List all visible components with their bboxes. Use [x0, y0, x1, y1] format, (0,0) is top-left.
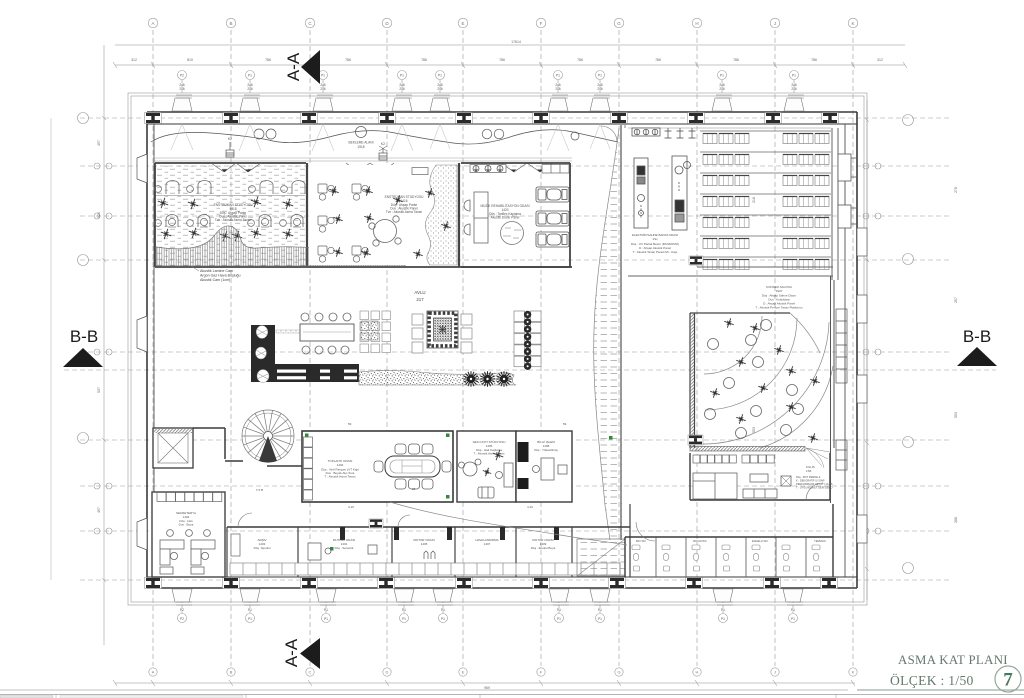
svg-text:P1: P1 — [438, 74, 442, 78]
svg-text:A-A: A-A — [284, 52, 303, 81]
svg-text:P1: P1 — [556, 74, 560, 78]
svg-text:P1: P1 — [324, 617, 328, 621]
svg-text:59: 59 — [348, 422, 352, 426]
svg-text:E: E — [461, 21, 464, 26]
svg-text:312: 312 — [877, 58, 883, 62]
svg-text:BEKLEME ALANI: BEKLEME ALANI — [349, 141, 374, 145]
svg-text:Döş : Epoksi: Döş : Epoksi — [254, 546, 271, 550]
svg-text:29: 29 — [412, 487, 416, 491]
svg-text:H: H — [696, 670, 699, 675]
svg-text:E: E — [462, 670, 465, 675]
svg-text:810: 810 — [187, 58, 193, 62]
svg-text:A-A: A-A — [282, 638, 301, 667]
svg-text:P1: P1 — [791, 617, 795, 621]
svg-text:786: 786 — [265, 58, 271, 62]
svg-text:T : Akustik Asma Tavan: T : Akustik Asma Tavan — [474, 452, 505, 456]
svg-text:786: 786 — [499, 58, 505, 62]
svg-text:P1: P1 — [792, 74, 796, 78]
svg-text:AVLU: AVLU — [414, 290, 425, 295]
svg-text:± 5 B: ± 5 B — [256, 488, 263, 492]
svg-text:786: 786 — [421, 58, 427, 62]
svg-text:A: A — [152, 670, 155, 675]
svg-text:P1: P1 — [402, 617, 406, 621]
svg-text:246: 246 — [179, 87, 185, 91]
svg-text:Döş : Yükseltilmiş: Döş : Yükseltilmiş — [534, 448, 558, 452]
svg-text:246: 246 — [719, 87, 725, 91]
svg-text:H: H — [695, 21, 698, 26]
svg-text:P1: P1 — [557, 617, 561, 621]
svg-text:Tvn : Akustik Asma Tavan: Tvn : Akustik Asma Tavan — [386, 210, 422, 214]
svg-text:288: 288 — [954, 517, 958, 523]
svg-text:BAY WC: BAY WC — [636, 539, 646, 543]
svg-text:P1: P1 — [721, 617, 725, 621]
svg-text:278: 278 — [954, 187, 958, 193]
svg-text:P1: P1 — [324, 608, 328, 612]
svg-text:P1: P1 — [720, 74, 724, 78]
svg-text:BAYAN WC: BAYAN WC — [693, 539, 707, 543]
svg-text:1405: 1405 — [421, 542, 428, 546]
svg-text:P1: P1 — [248, 617, 252, 621]
svg-text:1918: 1918 — [357, 145, 364, 149]
svg-text:17614: 17614 — [511, 40, 521, 44]
svg-text:969: 969 — [484, 686, 490, 690]
svg-text:497: 497 — [97, 140, 101, 146]
svg-text:J: J — [774, 670, 776, 675]
svg-text:K: K — [851, 21, 854, 26]
svg-text:553: 553 — [752, 427, 756, 433]
svg-text:246: 246 — [320, 87, 326, 91]
svg-text:P1: P1 — [248, 608, 252, 612]
svg-text:G: G — [617, 21, 621, 26]
svg-text:218: 218 — [752, 197, 756, 203]
svg-text:K2: K2 — [381, 142, 385, 146]
svg-text:B: B — [230, 670, 233, 675]
svg-text:P1: P1 — [598, 608, 602, 612]
svg-text:P2: P2 — [180, 617, 184, 621]
svg-text:217: 217 — [416, 297, 424, 302]
svg-text:312: 312 — [131, 58, 137, 62]
svg-text:T : Akustik Perfore Tavan Plat: T : Akustik Perfore Tavan Platformu — [756, 306, 803, 310]
svg-text:K: K — [852, 670, 855, 675]
svg-text:246: 246 — [791, 87, 797, 91]
svg-text:ASMA KAT PLANI: ASMA KAT PLANI — [898, 653, 1008, 667]
svg-text:Döş : ROT PERDE &: Döş : ROT PERDE & — [796, 475, 821, 479]
svg-text:Akustik Lamine Cam: Akustik Lamine Cam — [200, 269, 233, 273]
svg-text:P1: P1 — [402, 608, 406, 612]
svg-text:J: J — [774, 21, 776, 26]
svg-text:4,10: 4,10 — [348, 505, 354, 509]
svg-text:D: D — [386, 670, 389, 675]
svg-text:59: 59 — [563, 422, 567, 426]
svg-text:786: 786 — [655, 58, 661, 62]
svg-text:246: 246 — [555, 87, 561, 91]
svg-text:P1: P1 — [598, 617, 602, 621]
svg-text:ÖLÇEK : 1/50: ÖLÇEK : 1/50 — [890, 672, 974, 688]
svg-text:Duv : Boya: Duv : Boya — [179, 523, 194, 527]
svg-text:4,10: 4,10 — [527, 505, 533, 509]
svg-text:1S6: 1S6 — [806, 469, 812, 473]
svg-text:786: 786 — [811, 58, 817, 62]
svg-text:7: 7 — [1003, 670, 1013, 691]
svg-text:246: 246 — [399, 87, 405, 91]
svg-text:P1: P1 — [441, 608, 445, 612]
svg-text:Tvn : Akustik Asma Tavan: Tvn : Akustik Asma Tavan — [215, 218, 251, 222]
svg-text:1404: 1404 — [337, 463, 344, 467]
svg-text:497: 497 — [97, 507, 101, 513]
svg-text:Argon Gaz Hava Boşluğu: Argon Gaz Hava Boşluğu — [200, 274, 241, 278]
svg-text:1407: 1407 — [484, 542, 491, 546]
svg-text:Akustik Duvar Panel: Akustik Duvar Panel — [491, 216, 520, 220]
svg-text:G: G — [617, 670, 620, 675]
svg-text:P1: P1 — [598, 74, 602, 78]
svg-text:537: 537 — [97, 387, 101, 393]
svg-text:P1: P1 — [400, 74, 404, 78]
svg-text:786: 786 — [345, 58, 351, 62]
svg-text:A: A — [151, 21, 154, 26]
svg-text:T : Akustik Tavan Paneli Mt -: T : Akustik Tavan Paneli Mt - Kapı — [633, 250, 678, 254]
svg-text:C: C — [309, 670, 312, 675]
svg-text:524: 524 — [97, 212, 101, 218]
svg-text:246: 246 — [437, 87, 443, 91]
svg-text:K2: K2 — [228, 137, 232, 141]
svg-text:246: 246 — [247, 87, 253, 91]
svg-text:786: 786 — [733, 58, 739, 62]
svg-text:553: 553 — [954, 412, 958, 418]
svg-text:1Sx: 1Sx — [652, 237, 658, 241]
svg-text:257: 257 — [954, 297, 958, 303]
svg-text:Akustik Cam (1cm): Akustik Cam (1cm) — [200, 278, 230, 282]
svg-text:P2: P2 — [180, 74, 184, 78]
svg-text:P1: P1 — [791, 608, 795, 612]
svg-text:P2: P2 — [180, 608, 184, 612]
svg-text:B-B: B-B — [963, 327, 991, 346]
svg-text:1S07: 1S07 — [775, 289, 782, 293]
svg-text:B-B: B-B — [70, 327, 98, 346]
svg-text:246: 246 — [597, 87, 603, 91]
svg-text:786: 786 — [577, 58, 583, 62]
svg-text:P1: P1 — [248, 74, 252, 78]
svg-text:P1: P1 — [721, 608, 725, 612]
svg-text:P1: P1 — [557, 608, 561, 612]
svg-text:Döş : Seramik: Döş : Seramik — [335, 546, 354, 550]
svg-text:Döş : Epoksi Boya: Döş : Epoksi Boya — [531, 546, 556, 550]
svg-text:F: F — [540, 21, 543, 26]
svg-text:P1: P1 — [321, 74, 325, 78]
svg-text:P1: P1 — [441, 617, 445, 621]
svg-text:T : Akustik Asma Tavan: T : Akustik Asma Tavan — [325, 475, 356, 479]
svg-text:B: B — [229, 21, 232, 26]
